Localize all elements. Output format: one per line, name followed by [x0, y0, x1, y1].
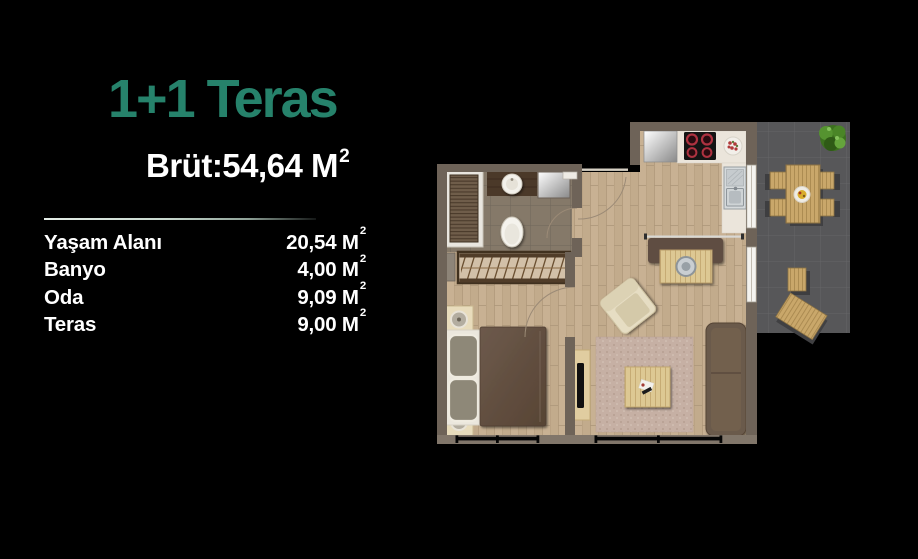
area-value: 9,00 M2	[297, 313, 365, 337]
window-tick	[496, 435, 499, 443]
fridge	[644, 131, 677, 162]
pillow	[449, 379, 478, 421]
entry-door-leaf	[563, 172, 577, 179]
area-table: Yaşam Alanı 20,54 M2 Banyo 4,00 M2 Oda 9…	[44, 231, 365, 341]
kitchen-plate	[724, 137, 742, 155]
wall-divider	[565, 252, 575, 287]
area-label: Banyo	[44, 258, 106, 282]
tv	[577, 363, 584, 408]
area-value: 4,00 M2	[297, 258, 365, 282]
window-tick	[595, 435, 598, 443]
area-row-banyo: Banyo 4,00 M2	[44, 258, 365, 285]
burner	[702, 135, 712, 145]
toilet	[501, 217, 523, 247]
sofa	[706, 323, 746, 436]
wall-bath-right	[572, 164, 582, 208]
wall-divider	[565, 337, 575, 435]
wall-top-bath	[437, 164, 582, 172]
vanity-sink	[502, 174, 522, 194]
terrace	[757, 122, 850, 345]
wall-kitchen-top	[630, 122, 757, 131]
wall-left	[437, 164, 447, 444]
area-label: Yaşam Alanı	[44, 231, 162, 255]
area-label: Teras	[44, 313, 96, 337]
shower-slats	[450, 175, 478, 242]
area-label: Oda	[44, 286, 83, 310]
area-value: 9,09 M2	[297, 286, 365, 310]
window-tick	[657, 435, 660, 443]
kitchen-sink	[724, 167, 746, 209]
gross-area-text: Brüt:54,64 M	[146, 147, 338, 184]
area-row-oda: Oda 9,09 M2	[44, 286, 365, 313]
entry-threshold	[582, 169, 628, 171]
area-row-teras: Teras 9,00 M2	[44, 313, 365, 340]
divider-line	[44, 218, 316, 220]
floorplan-card: 1+1 Teras Brüt:54,64 M2 Yaşam Alanı 20,5…	[0, 0, 918, 559]
wardrobe	[458, 252, 570, 283]
window-tick	[456, 435, 459, 443]
gross-area: Brüt:54,64 M2	[146, 147, 348, 185]
burner	[688, 148, 697, 157]
entry-hall	[443, 252, 570, 283]
nightstand	[445, 306, 473, 333]
terrace-plate	[794, 187, 810, 203]
floor-plan	[430, 105, 880, 450]
double-bed	[443, 327, 546, 426]
partition-cap	[741, 234, 744, 240]
burner	[703, 148, 712, 157]
window-tick	[537, 435, 540, 443]
faucet	[734, 187, 738, 191]
terrace-stool	[788, 268, 806, 291]
partition-cap	[644, 234, 647, 240]
gross-area-sup: 2	[339, 146, 349, 167]
terrace-chair	[770, 172, 786, 189]
blanket	[480, 327, 546, 426]
area-value: 20,54 M2	[286, 231, 365, 255]
cooktop	[684, 132, 716, 160]
terrace-chair	[770, 199, 786, 216]
pillow	[449, 335, 478, 377]
area-row-yasam-alani: Yaşam Alanı 20,54 M2	[44, 231, 365, 258]
glass-partition	[646, 236, 742, 238]
window-tick	[720, 435, 723, 443]
burner	[687, 135, 697, 145]
plan-title: 1+1 Teras	[108, 68, 337, 130]
coffee-table	[625, 367, 670, 407]
